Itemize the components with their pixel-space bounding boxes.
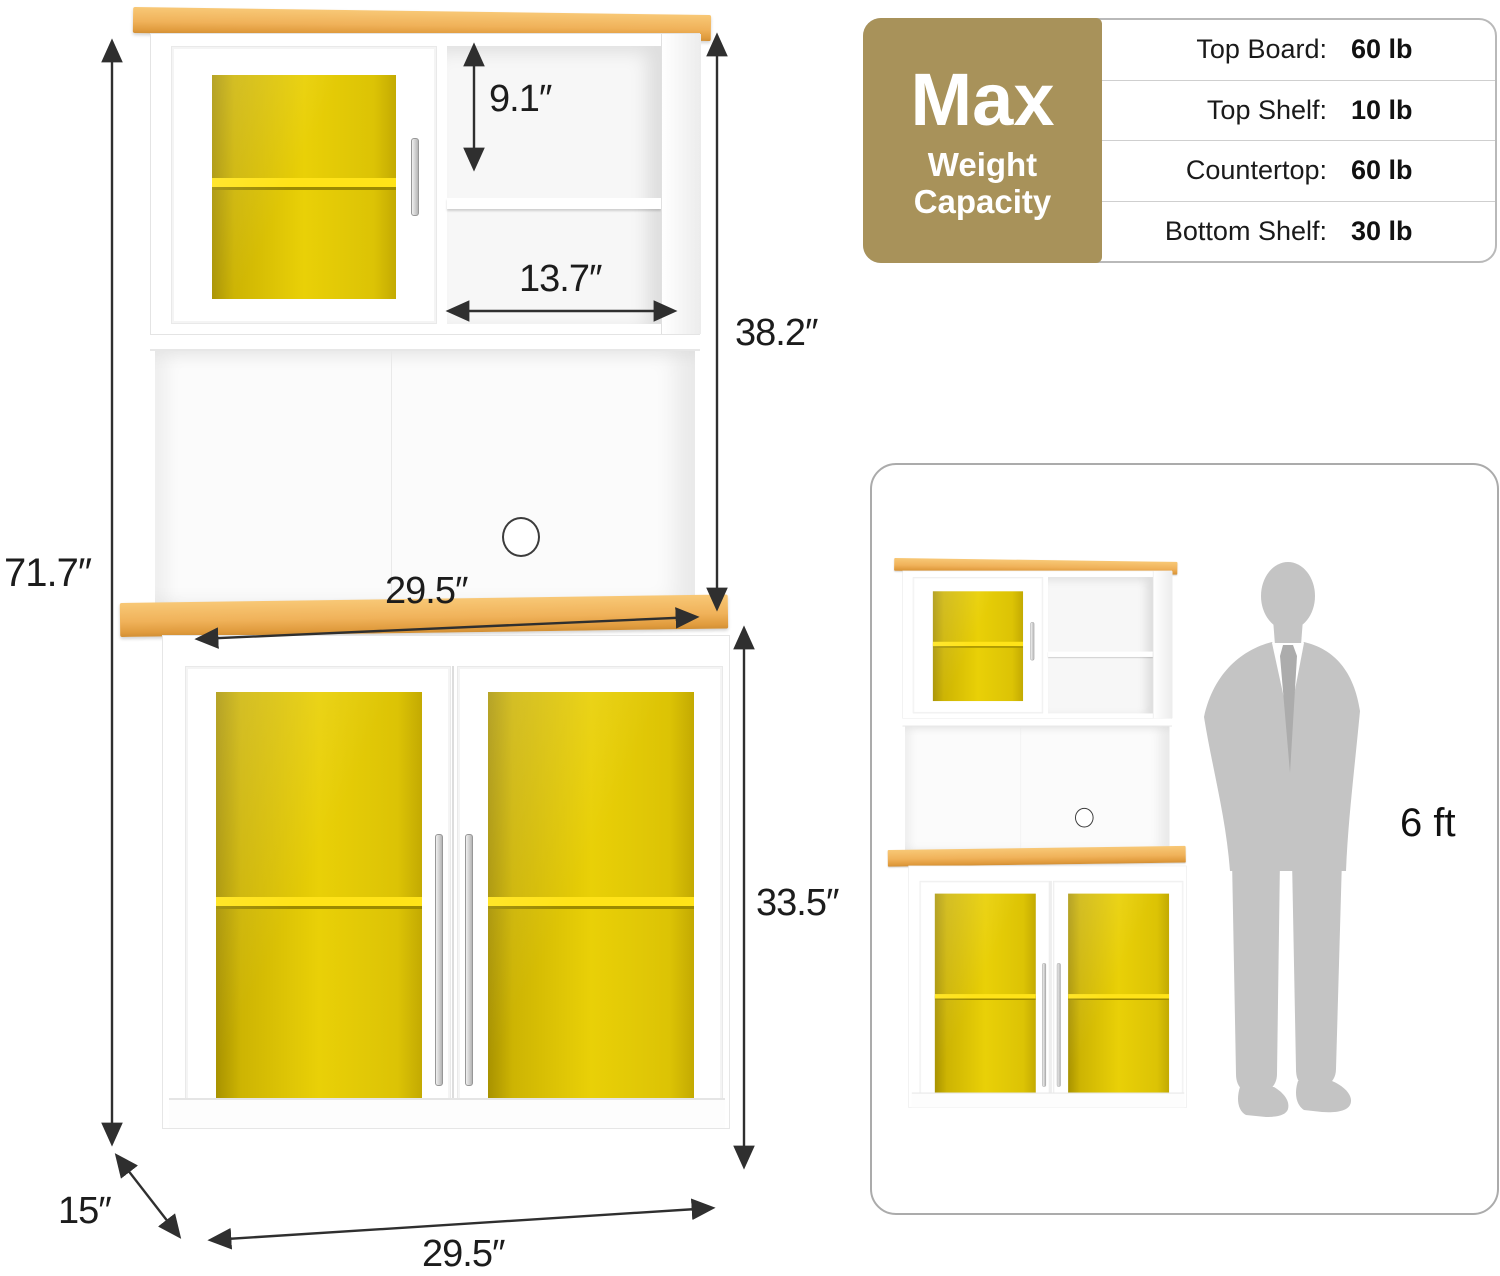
max-weight-badge: Max Weight Capacity [863, 18, 1102, 263]
lower-right-handle [1057, 963, 1061, 1086]
badge-subtitle-line2: Capacity [914, 183, 1052, 220]
product-dimension-infographic: 71.7″ 9.1″ 13.7″ 38.2″ 29.5″ 33.5″ 15″ 2… [0, 0, 1500, 1276]
lower-cabinet [908, 866, 1186, 1108]
dim-top-opening-width: 13.7″ [519, 258, 601, 301]
toe-kick [912, 1093, 1184, 1108]
row-value: 60 lb [1351, 34, 1413, 65]
table-row: Top Board: 60 lb [1102, 20, 1495, 81]
table-row: Bottom Shelf: 30 lb [1102, 202, 1495, 262]
hutch-door-handle [1030, 622, 1034, 660]
glass-sheen [1068, 894, 1169, 1095]
open-shelf-divider [1048, 652, 1153, 657]
lower-left-glass [935, 894, 1036, 1095]
badge-title: Max [911, 62, 1055, 138]
glass-sheen [935, 894, 1036, 1095]
table-row: Top Shelf: 10 lb [1102, 81, 1495, 142]
dim-top-shelf-height: 9.1″ [489, 78, 551, 121]
row-value: 10 lb [1351, 95, 1413, 126]
person-silhouette [1192, 559, 1367, 1125]
dim-lower-cabinet-height: 33.5″ [756, 882, 838, 925]
row-value: 60 lb [1351, 155, 1413, 186]
scale-panel-cabinet [878, 557, 1196, 1121]
dim-hutch-height: 38.2″ [735, 312, 817, 355]
dim-base-width: 29.5″ [422, 1233, 504, 1276]
hutch-side-panel [1153, 571, 1173, 718]
row-label: Bottom Shelf: [1102, 216, 1327, 247]
cable-hole [1075, 808, 1094, 828]
countertop-board [888, 846, 1186, 867]
row-label: Top Shelf: [1102, 95, 1327, 126]
dim-countertop-width: 29.5″ [385, 570, 467, 613]
lower-left-handle [1042, 963, 1046, 1086]
upper-hutch [903, 571, 1173, 719]
glass-sheen [933, 591, 1023, 701]
scale-panel: 6 ft [870, 463, 1499, 1215]
lower-right-glass [1068, 894, 1169, 1095]
hutch-bottom-shelf [903, 719, 1173, 727]
hutch-glass-door [913, 577, 1043, 713]
dim-depth: 15″ [58, 1190, 111, 1233]
row-value: 30 lb [1351, 216, 1413, 247]
lower-left-door [920, 881, 1050, 1106]
hutch-door-glass [933, 591, 1023, 701]
row-label: Top Board: [1102, 34, 1327, 65]
lower-right-door [1053, 881, 1183, 1106]
open-shelf-compartment [1048, 577, 1153, 713]
door-gap [1050, 881, 1051, 1106]
microwave-opening [905, 727, 1170, 851]
table-row: Countertop: 60 lb [1102, 141, 1495, 202]
person-height-label: 6 ft [1400, 801, 1456, 846]
weight-capacity-card: Max Weight Capacity Top Board: 60 lb Top… [863, 18, 1497, 263]
badge-subtitle-line1: Weight [928, 146, 1037, 183]
weight-capacity-table: Top Board: 60 lb Top Shelf: 10 lb Counte… [1102, 20, 1495, 261]
dim-overall-height: 71.7″ [4, 551, 91, 596]
row-label: Countertop: [1102, 155, 1327, 186]
